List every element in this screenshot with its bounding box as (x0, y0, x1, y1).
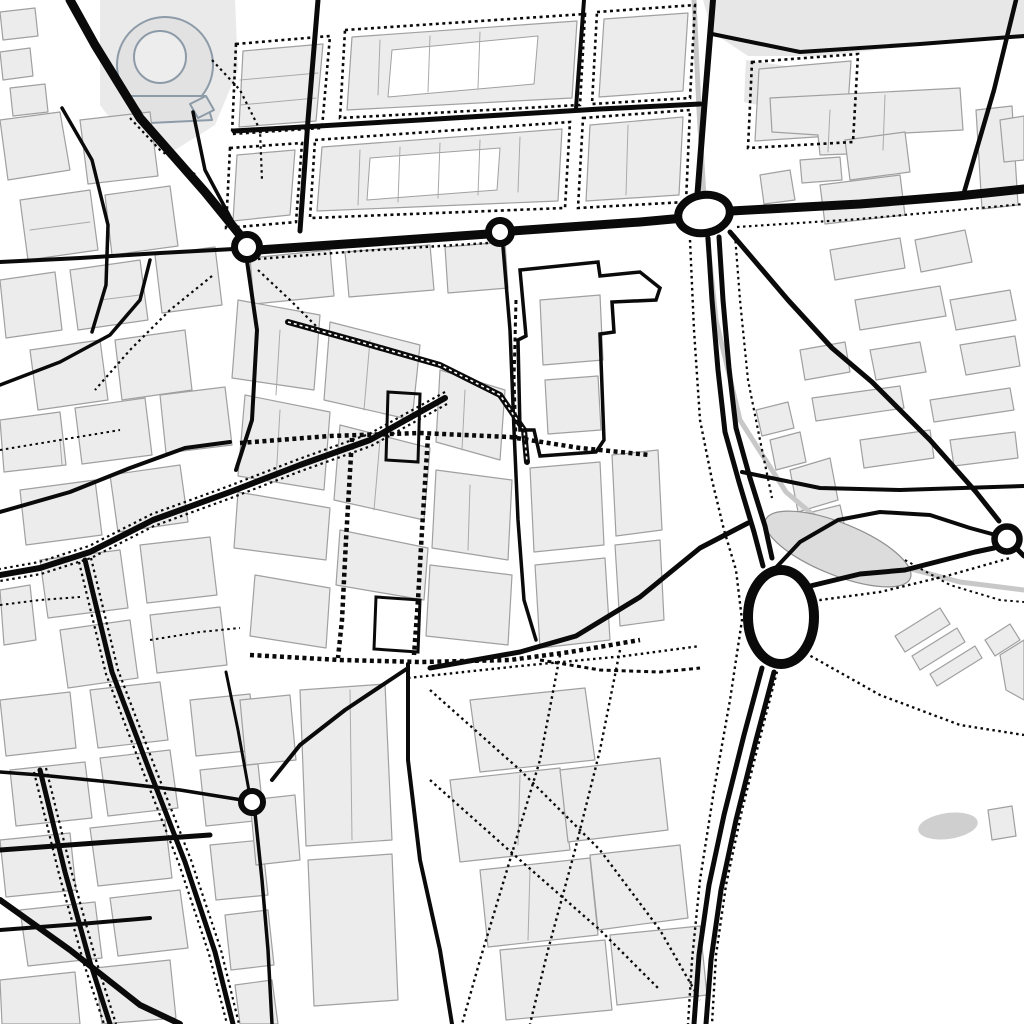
building-footprint (480, 858, 598, 947)
building-footprint (870, 342, 926, 380)
building-footprint (590, 845, 688, 930)
building-footprint (800, 157, 842, 183)
building-footprint (0, 412, 66, 472)
building-footprint (426, 565, 512, 645)
building-footprint (0, 692, 76, 756)
building-footprint (232, 300, 320, 390)
building-footprint (90, 820, 172, 886)
building-footprint (20, 190, 98, 260)
building-footprint (250, 250, 334, 304)
building-footprint (960, 336, 1020, 375)
building-footprint (450, 768, 570, 862)
building-footprint (345, 245, 434, 297)
building-footprint (800, 342, 850, 380)
building-footprint (915, 230, 972, 272)
roundabout (489, 221, 512, 244)
building-footprint (586, 117, 683, 201)
building-footprint (545, 376, 601, 434)
building-footprint (530, 462, 604, 552)
building-footprint (308, 854, 398, 1006)
building-footprint (336, 530, 428, 600)
building-footprint (115, 330, 192, 400)
roundabout (675, 191, 733, 237)
building-footprint (0, 972, 80, 1024)
building-footprint (845, 132, 910, 180)
building-footprint (0, 272, 62, 338)
building-footprint (150, 607, 227, 673)
path-dotted (712, 660, 780, 1024)
building-footprint (445, 242, 508, 293)
building-footprint (105, 186, 178, 255)
building-footprint (560, 758, 668, 842)
wall-outline (374, 597, 420, 652)
building-footprint (855, 286, 946, 330)
building-footprint (10, 84, 48, 116)
building-footprint (110, 890, 188, 956)
bullring-arena (134, 31, 186, 83)
building-footprint (0, 8, 38, 40)
building-footprint (830, 238, 905, 280)
roundabout (241, 791, 263, 813)
road-segment (408, 664, 452, 1024)
building-footprint (0, 585, 36, 645)
building-footprint (30, 340, 108, 410)
building-footprint (612, 450, 662, 536)
building-footprint (60, 620, 138, 688)
building-footprint (950, 290, 1016, 330)
building-footprint (240, 695, 296, 765)
building-footprint (760, 170, 795, 204)
roundabout (748, 570, 814, 664)
map-viewport[interactable] (0, 0, 1024, 1024)
building-footprint (470, 688, 595, 772)
building-footprint (770, 432, 806, 470)
building-footprint (140, 537, 217, 603)
building-footprint (0, 112, 70, 180)
parking-area (916, 809, 979, 843)
building-footprint (1000, 116, 1024, 162)
building-footprint (756, 402, 794, 436)
building-footprint (599, 13, 688, 97)
roundabout (995, 527, 1020, 552)
buildings-layer (0, 8, 1024, 1024)
building-footprint (0, 48, 33, 80)
building-footprint (432, 470, 512, 560)
path-dotted (800, 650, 1024, 735)
roundabout (235, 235, 260, 260)
map-canvas[interactable] (0, 0, 1024, 1024)
building-footprint (20, 480, 102, 545)
road-segment (512, 218, 684, 231)
building-footprint (930, 388, 1014, 422)
building-footprint (950, 432, 1018, 466)
building-footprint (250, 575, 330, 648)
building-footprint (234, 492, 330, 560)
building-footprint (155, 247, 222, 313)
building-footprint (500, 940, 612, 1020)
building-footprint (540, 295, 603, 365)
building-footprint (233, 150, 295, 221)
building-footprint (988, 806, 1016, 840)
